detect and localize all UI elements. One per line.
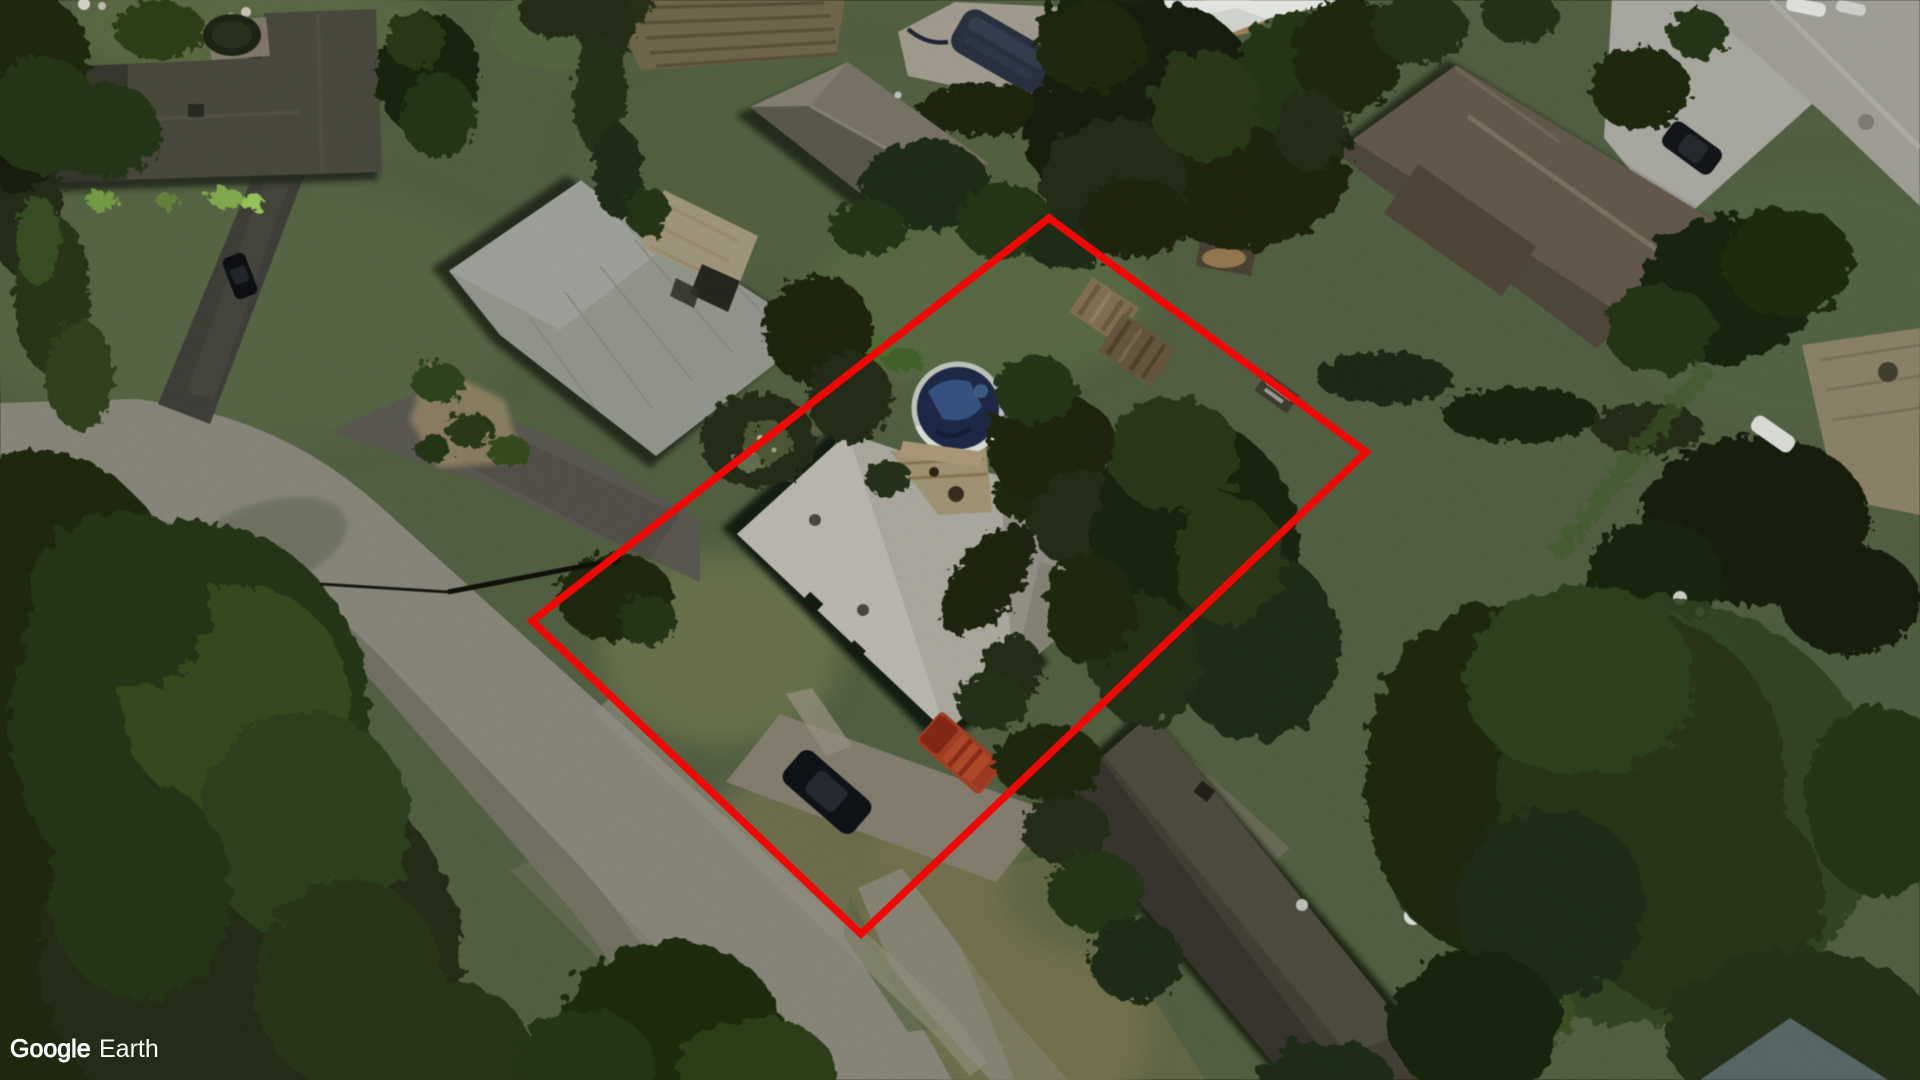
svg-text:Google: Google [10, 1035, 91, 1063]
svg-text:Earth: Earth [99, 1035, 159, 1063]
